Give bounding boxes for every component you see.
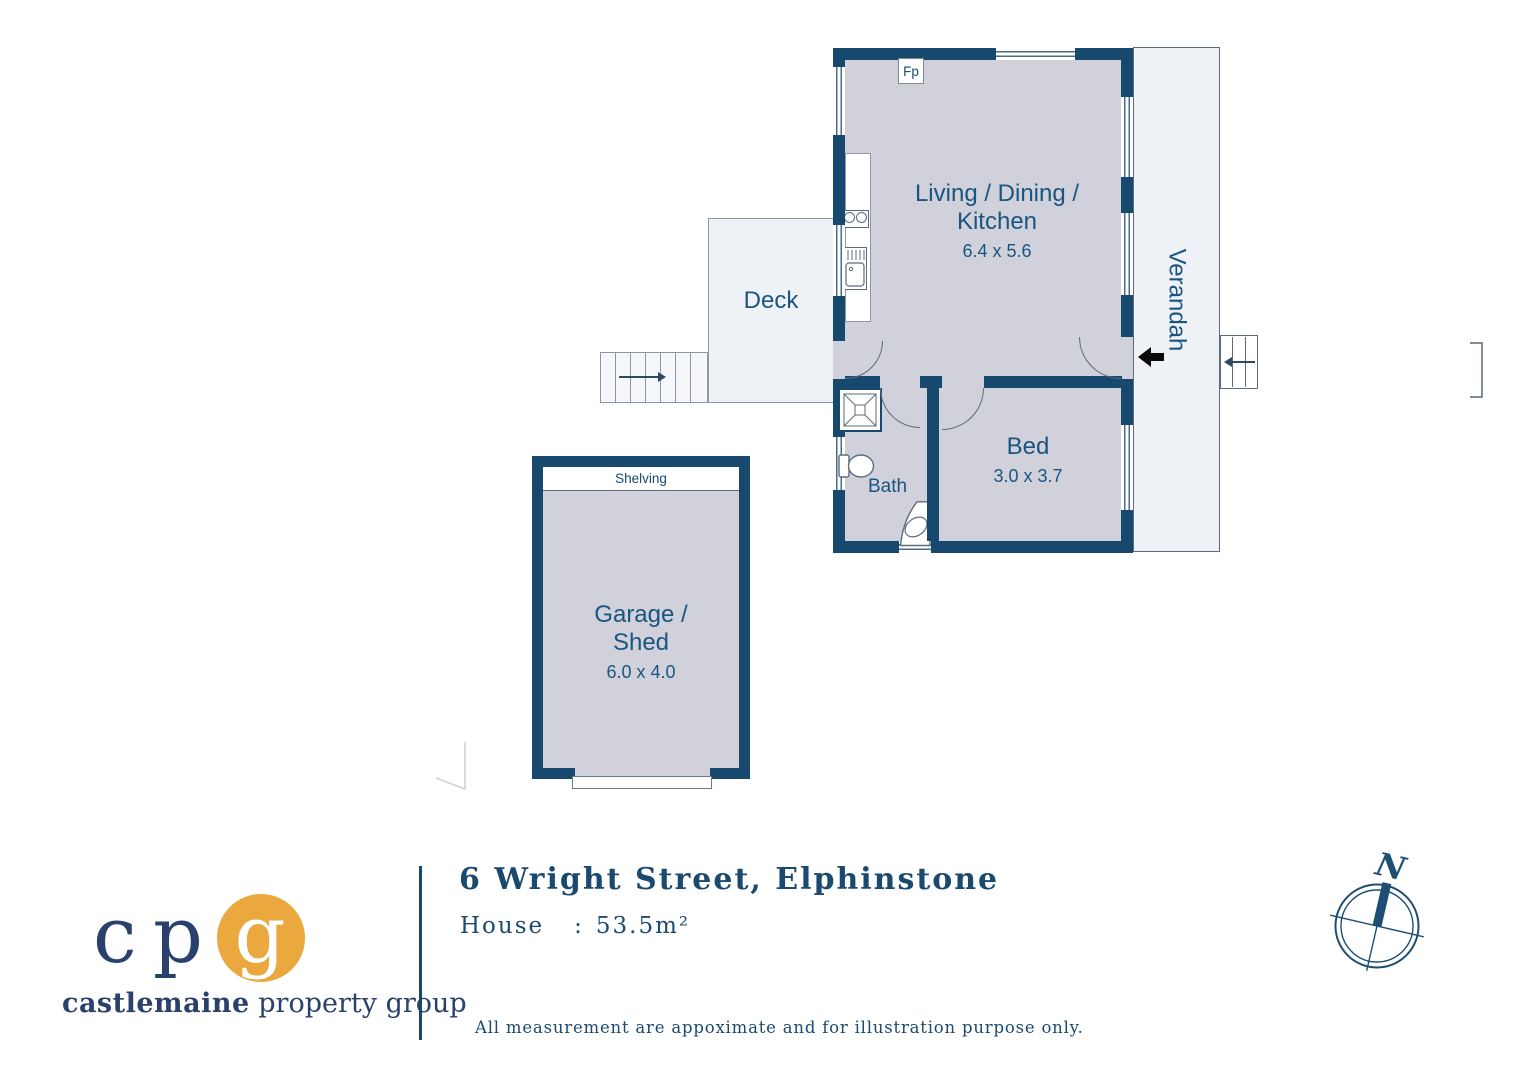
stair-tread xyxy=(675,353,676,402)
garage-dimensions: 6.0 x 4.0 xyxy=(543,660,739,684)
window xyxy=(1121,97,1133,177)
door-opening-verandah xyxy=(1121,337,1133,379)
deck-stairs xyxy=(600,352,708,403)
corner-tick-mark xyxy=(434,737,470,793)
disclaimer-text: All measurement are appoximate and for i… xyxy=(475,1018,1084,1037)
wall-bath-bed-divider xyxy=(927,388,939,541)
compass-north-label: N xyxy=(1371,845,1411,889)
bed-dimensions: 3.0 x 3.7 xyxy=(943,464,1113,488)
compass-needle xyxy=(1373,882,1392,927)
stair-direction-line xyxy=(619,376,659,378)
wall-top xyxy=(833,48,1133,60)
house-area-colon: : xyxy=(574,913,584,939)
wall-bed-top xyxy=(984,376,1122,388)
stair-arrow-icon xyxy=(1224,357,1232,367)
entry-arrow-icon xyxy=(1137,345,1165,369)
shower-icon xyxy=(838,388,882,432)
logo-letter-g: g xyxy=(234,895,285,975)
property-title: 6 Wright Street, Elphinstone xyxy=(459,862,999,897)
bed-room-label: Bed 3.0 x 3.7 xyxy=(943,433,1113,488)
garage-label-line1: Garage / xyxy=(543,601,739,629)
garage-door-panel xyxy=(572,776,712,789)
wall-divider-cap xyxy=(920,376,942,388)
footer-divider xyxy=(419,866,422,1040)
north-compass: N xyxy=(1328,842,1432,982)
door-opening-deck xyxy=(833,341,845,379)
logo-letter-c: c xyxy=(93,897,137,975)
garage-label: Garage / Shed 6.0 x 4.0 xyxy=(543,601,739,684)
window xyxy=(833,225,845,296)
shelving-strip: Shelving xyxy=(543,467,739,491)
verandah-label: Verandah xyxy=(1163,248,1191,351)
floorplan-canvas: Deck Verandah xyxy=(0,0,1513,1080)
logo-letter-p: p xyxy=(153,897,203,975)
garage-label-line2: Shed xyxy=(543,629,739,657)
brand-name-bold: castlemaine xyxy=(62,988,250,1019)
living-dimensions: 6.4 x 5.6 xyxy=(847,239,1147,263)
logo-orange-circle: g xyxy=(217,894,305,982)
verandah-area: Verandah xyxy=(1133,47,1220,552)
stair-tread xyxy=(690,353,691,402)
stair-direction-line xyxy=(1230,361,1255,363)
logo-tagline: castlemaine property group xyxy=(62,988,467,1019)
living-label-line2: Kitchen xyxy=(847,208,1147,236)
stair-tread xyxy=(615,353,616,402)
stair-arrow-icon xyxy=(658,372,666,382)
bed-label: Bed xyxy=(943,433,1113,461)
deck-area: Deck xyxy=(708,218,834,403)
house-area-label: House xyxy=(460,913,544,939)
brand-name-regular: property group xyxy=(258,988,466,1019)
deck-label: Deck xyxy=(709,287,833,315)
wall-bottom xyxy=(833,541,1133,553)
shelving-label: Shelving xyxy=(615,471,667,486)
bath-label: Bath xyxy=(845,476,930,498)
fireplace-label: Fp xyxy=(903,64,919,79)
window xyxy=(996,48,1075,60)
house-area-line: House:53.5m² xyxy=(460,913,690,939)
edge-bracket-mark xyxy=(1469,341,1485,399)
verandah-stairs xyxy=(1220,335,1258,389)
living-room-label: Living / Dining / Kitchen 6.4 x 5.6 xyxy=(847,180,1147,263)
fireplace-box: Fp xyxy=(898,58,924,84)
window xyxy=(1121,425,1133,510)
living-label-line1: Living / Dining / xyxy=(847,180,1147,208)
window xyxy=(833,67,845,135)
house-area-value: 53.5m² xyxy=(596,913,690,939)
